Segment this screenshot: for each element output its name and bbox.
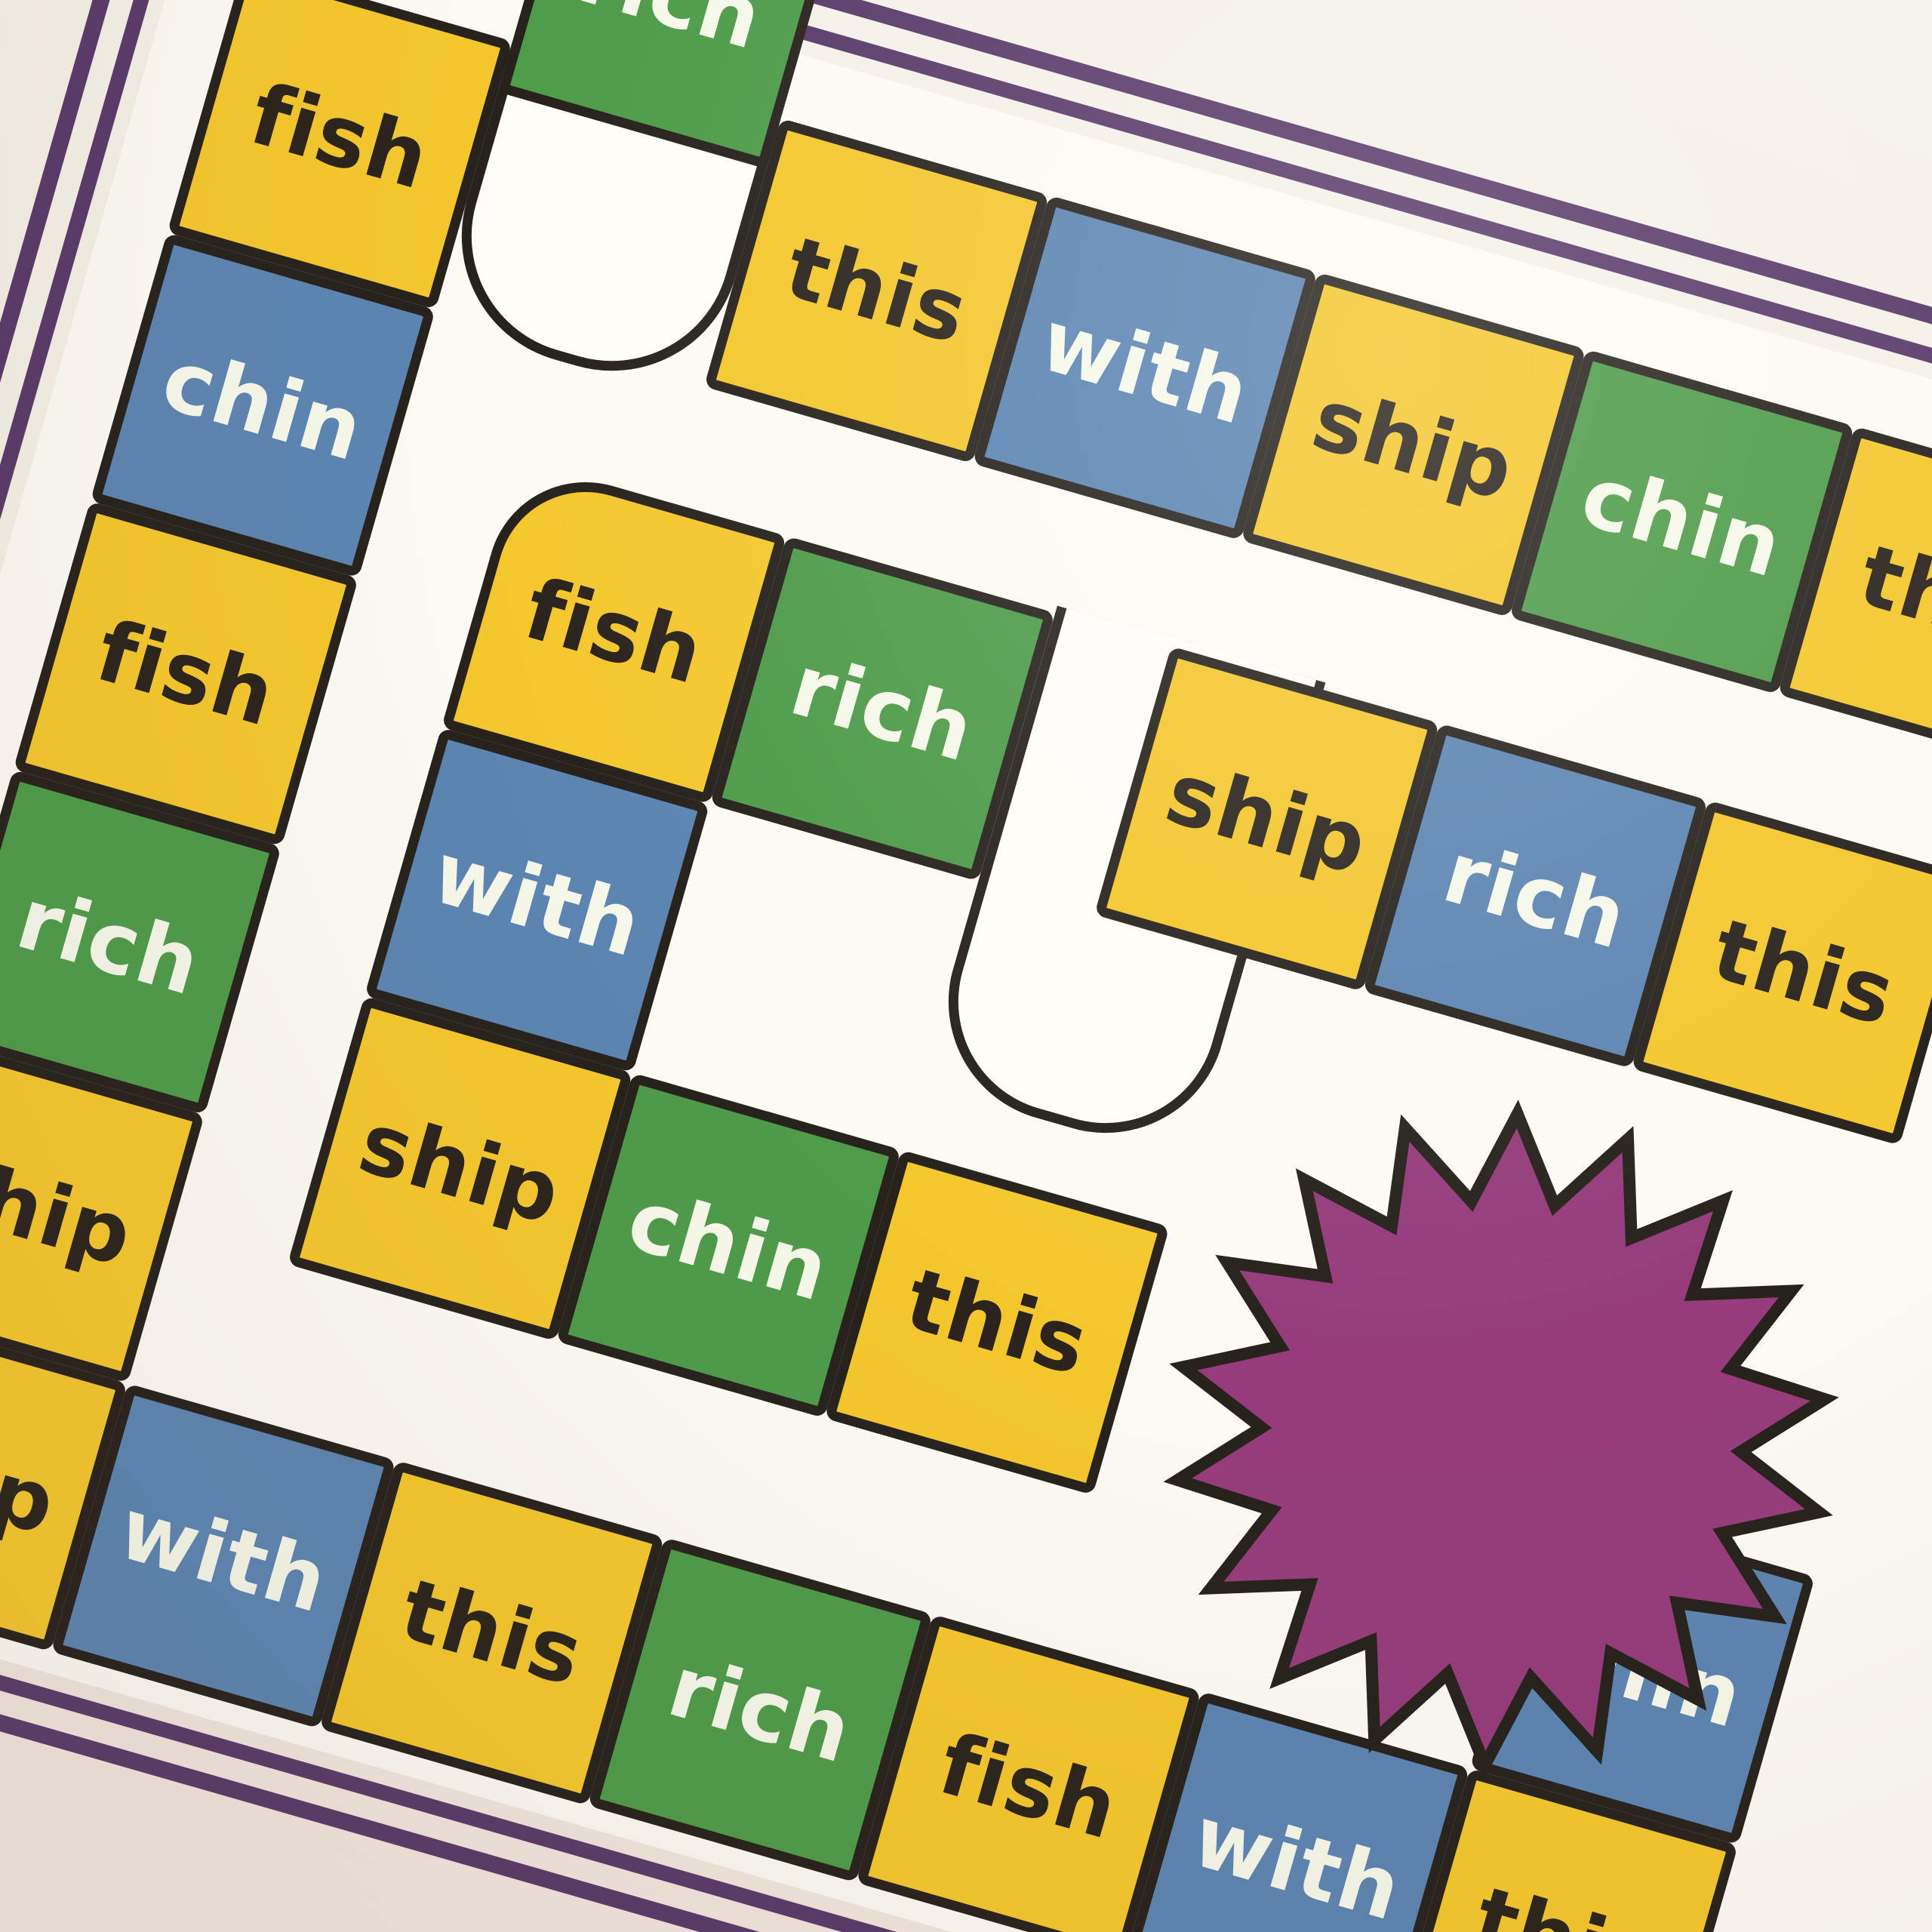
- cell-word: with: [424, 830, 650, 970]
- cell-word: fish: [931, 1721, 1126, 1852]
- cell-word: ship: [1304, 377, 1522, 514]
- cell-word: rich: [783, 643, 983, 775]
- cell-word: fish: [242, 72, 438, 202]
- cell-word: this: [1466, 1875, 1665, 1932]
- cell-word: rich: [571, 0, 771, 62]
- cell-word: chin: [1573, 454, 1791, 591]
- cell-word: rich: [660, 1644, 860, 1776]
- cell-word: chin: [620, 1177, 838, 1315]
- cell-word: with: [1184, 1794, 1410, 1932]
- cell-word: fish: [88, 608, 284, 739]
- cell-word: this: [1704, 907, 1903, 1038]
- cell-word: ship: [351, 1100, 569, 1237]
- starburst-shape: [1099, 1038, 1903, 1840]
- cell-word: chin: [154, 337, 372, 474]
- photo-of-word-game-board: fishrichthiswithshipchinthischinfishrich…: [0, 0, 1932, 1932]
- cell-word: ship: [0, 1142, 141, 1279]
- cell-word: this: [897, 1257, 1097, 1388]
- cell-word: this: [777, 225, 977, 356]
- cell-word: ship: [0, 1411, 64, 1548]
- cell-word: rich: [1435, 830, 1635, 962]
- cell-word: ship: [1158, 750, 1376, 888]
- cell-word: with: [110, 1486, 336, 1626]
- cell-word: this: [1850, 533, 1932, 664]
- cell-word: fish: [516, 566, 712, 697]
- cell-word: with: [1032, 298, 1258, 438]
- cell-word: rich: [9, 876, 209, 1008]
- cell-word: this: [392, 1567, 592, 1699]
- game-board: fishrichthiswithshipchinthischinfishrich…: [0, 0, 1932, 1932]
